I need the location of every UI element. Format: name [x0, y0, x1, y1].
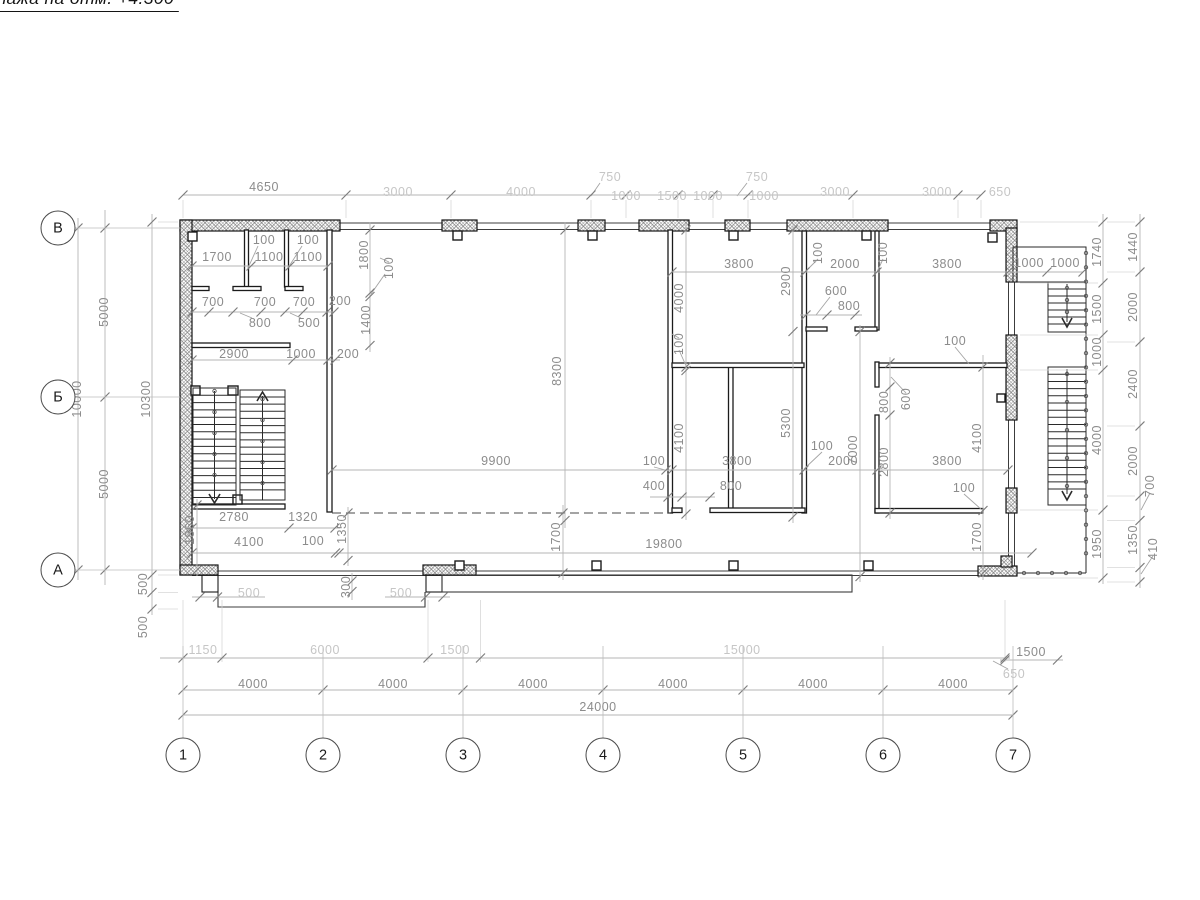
dim-label: 4000	[1090, 425, 1104, 455]
dim-label: 600	[825, 284, 847, 298]
dim-label: 15000	[723, 643, 760, 657]
dim-label: 1000	[1090, 337, 1104, 367]
dim-label: 6000	[310, 643, 340, 657]
dim-label: 500	[390, 586, 412, 600]
dim-label: 600	[899, 388, 913, 410]
dim-label: 1100	[255, 250, 284, 264]
dim-label: 24000	[579, 700, 616, 714]
dim-label: 500	[136, 616, 150, 638]
dim-label: 4000	[238, 677, 268, 691]
dim-label: 1700	[549, 522, 563, 552]
dim-label: 100	[382, 257, 396, 279]
dim-label: 1860	[183, 515, 197, 545]
dim-label: 650	[1003, 667, 1025, 681]
dim-label: 2900	[779, 266, 793, 296]
dim-label: 800	[877, 391, 891, 413]
dim-label: 5000	[97, 297, 111, 327]
dim-label: 200	[329, 294, 351, 308]
dim-label: 750	[599, 170, 621, 184]
porch-outline	[202, 575, 852, 607]
dim-label: 1700	[970, 522, 984, 552]
dim-label: 2780	[219, 510, 249, 524]
grid-axis-column-7: 7	[996, 738, 1031, 773]
dim-label: 410	[1146, 538, 1160, 560]
dim-label: 5000	[97, 469, 111, 499]
grid-axis-row-Б: Б	[41, 380, 76, 415]
dim-label: 1000	[611, 189, 641, 203]
grid-axis-row-А: А	[41, 553, 76, 588]
dim-label: 700	[1143, 475, 1157, 497]
dim-label: 8300	[550, 356, 564, 386]
dim-label: 800	[249, 316, 271, 330]
dim-label: 1350	[1126, 525, 1140, 555]
dim-label: 700	[254, 295, 276, 309]
dim-label: 9900	[481, 454, 511, 468]
drawing-sheet: Монтажный план этажа на отм. +4.300 4650…	[0, 0, 1200, 900]
dim-label: 4650	[249, 180, 279, 194]
dim-label: 100	[811, 242, 825, 264]
dim-label: 1000	[1014, 256, 1044, 270]
dim-label: 100	[297, 233, 319, 247]
drawing-title: Монтажный план этажа на отм. +4.300	[0, 0, 179, 12]
dim-label: 100	[643, 454, 665, 468]
dim-label: 1500	[657, 189, 687, 203]
dim-label: 100	[876, 242, 890, 264]
grid-axis-column-6: 6	[866, 738, 901, 773]
dim-label: 1150	[189, 643, 218, 657]
dim-label: 4000	[798, 677, 828, 691]
dim-label: 4000	[672, 283, 686, 313]
dim-label: 4100	[970, 423, 984, 453]
dim-label: 1700	[202, 250, 232, 264]
dim-label: 300	[339, 576, 353, 598]
dim-label: 2000	[1126, 446, 1140, 476]
dim-label: 2900	[219, 347, 249, 361]
dim-label: 800	[720, 479, 742, 493]
dim-label: 1740	[1090, 237, 1104, 267]
dim-label: 1400	[359, 305, 373, 335]
dim-label: 4100	[234, 535, 264, 549]
grid-axis-row-В: В	[41, 211, 76, 246]
dim-label: 1000	[693, 189, 723, 203]
dim-label: 1800	[357, 240, 371, 270]
grid-axis-column-2: 2	[306, 738, 341, 773]
grid-axis-column-5: 5	[726, 738, 761, 773]
dim-label: 1950	[1090, 529, 1104, 559]
dim-label: 3800	[932, 454, 962, 468]
dim-label: 500	[298, 316, 320, 330]
dim-label: 3800	[722, 454, 752, 468]
dim-label: 4000	[378, 677, 408, 691]
dim-label: 100	[302, 534, 324, 548]
dim-label: 7000	[846, 435, 860, 465]
dim-label: 4000	[938, 677, 968, 691]
dim-label: 500	[136, 573, 150, 595]
dim-label: 3000	[383, 185, 413, 199]
dim-label: 100	[253, 233, 275, 247]
grid-axis-column-3: 3	[446, 738, 481, 773]
grid-axis-column-4: 4	[586, 738, 621, 773]
dim-label: 4000	[518, 677, 548, 691]
dim-label: 3000	[820, 185, 850, 199]
dim-label: 750	[746, 170, 768, 184]
dim-label: 2000	[830, 257, 860, 271]
dim-label: 1350	[335, 514, 349, 544]
dim-label: 4000	[658, 677, 688, 691]
dim-label: 100	[944, 334, 966, 348]
dimension-lines	[74, 191, 1145, 739]
dim-label: 4100	[672, 423, 686, 453]
dim-label: 3800	[932, 257, 962, 271]
dim-label: 700	[202, 295, 224, 309]
dim-label: 3000	[922, 185, 952, 199]
dim-label: 2400	[1126, 369, 1140, 399]
dim-label: 10300	[139, 380, 153, 417]
dim-label: 700	[293, 295, 315, 309]
dim-label: 1500	[440, 643, 470, 657]
grid-axis-column-1: 1	[166, 738, 201, 773]
dim-label: 1320	[288, 510, 318, 524]
dim-label: 1500	[1090, 294, 1104, 324]
dim-label: 5300	[779, 408, 793, 438]
dim-label: 1440	[1126, 232, 1140, 262]
dim-label: 1500	[1016, 645, 1046, 659]
dim-label: 650	[989, 185, 1011, 199]
dim-label: 800	[838, 299, 860, 313]
dim-label: 19800	[645, 537, 682, 551]
dim-label: 1000	[1050, 256, 1080, 270]
dim-label: 3800	[724, 257, 754, 271]
dim-label: 200	[337, 347, 359, 361]
dim-label: 2800	[877, 447, 891, 477]
dim-label: 1000	[749, 189, 779, 203]
dim-label: 1100	[294, 250, 323, 264]
dim-label: 2000	[1126, 292, 1140, 322]
dim-label: 500	[238, 586, 260, 600]
dim-label: 100	[811, 439, 833, 453]
dim-label: 4000	[506, 185, 536, 199]
dim-label: 100	[672, 333, 686, 355]
dim-label: 100	[953, 481, 975, 495]
dim-label: 1000	[286, 347, 316, 361]
dim-label: 400	[643, 479, 665, 493]
